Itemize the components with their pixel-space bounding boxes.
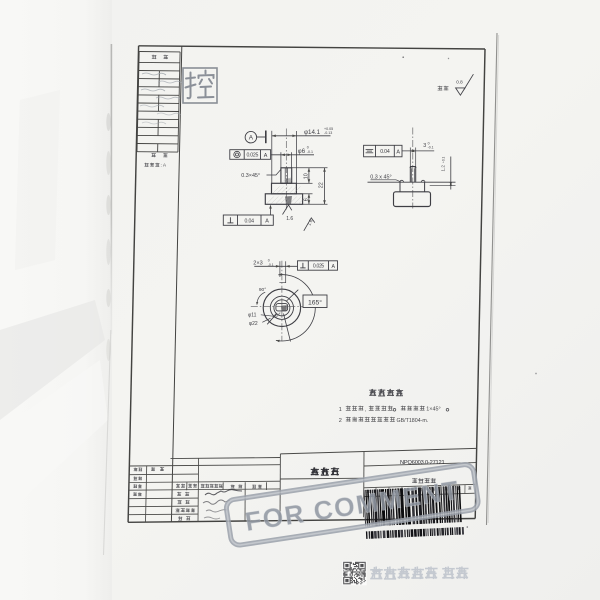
svg-text:φ11: φ11 — [248, 313, 257, 319]
svg-text:GB/T1804-m.: GB/T1804-m. — [397, 418, 429, 424]
svg-text:1: 1 — [339, 407, 342, 413]
svg-text:A: A — [331, 264, 335, 270]
svg-text:10: 10 — [304, 173, 310, 179]
svg-text:φ22: φ22 — [249, 321, 258, 327]
svg-text:: A: : A — [161, 163, 167, 169]
svg-text:NPQ6003.0-27121: NPQ6003.0-27121 — [400, 460, 444, 466]
svg-text:,: , — [365, 407, 366, 413]
svg-text:A: A — [264, 153, 268, 159]
svg-text:φ6: φ6 — [298, 149, 306, 155]
svg-text:-0.1: -0.1 — [428, 145, 434, 149]
svg-text:A: A — [249, 135, 254, 142]
svg-text:A: A — [265, 218, 269, 224]
svg-text:A: A — [396, 149, 400, 155]
svg-text:-0.13: -0.13 — [324, 131, 332, 135]
svg-text:1×45°: 1×45° — [426, 407, 440, 413]
svg-text:2: 2 — [339, 418, 342, 424]
svg-text:-0.1: -0.1 — [307, 150, 313, 154]
svg-text:+0.1: +0.1 — [442, 156, 446, 163]
svg-text:1.6: 1.6 — [286, 216, 293, 222]
svg-text:1.2: 1.2 — [441, 165, 446, 172]
svg-text:6: 6 — [304, 198, 310, 201]
svg-text:2×3: 2×3 — [253, 261, 262, 267]
svg-text:22: 22 — [319, 182, 325, 188]
svg-text:0.8: 0.8 — [456, 80, 463, 85]
svg-text:0.025: 0.025 — [313, 264, 325, 270]
svg-text:3: 3 — [423, 143, 426, 149]
svg-text:-0.1: -0.1 — [268, 263, 274, 267]
svg-text:0.04: 0.04 — [245, 218, 255, 224]
svg-text:0.025: 0.025 — [247, 153, 259, 159]
svg-text:φ14.1: φ14.1 — [304, 129, 321, 136]
svg-text:165°: 165° — [308, 299, 322, 307]
svg-text:0.04: 0.04 — [380, 149, 390, 155]
svg-text:0.3×45°: 0.3×45° — [241, 173, 260, 179]
